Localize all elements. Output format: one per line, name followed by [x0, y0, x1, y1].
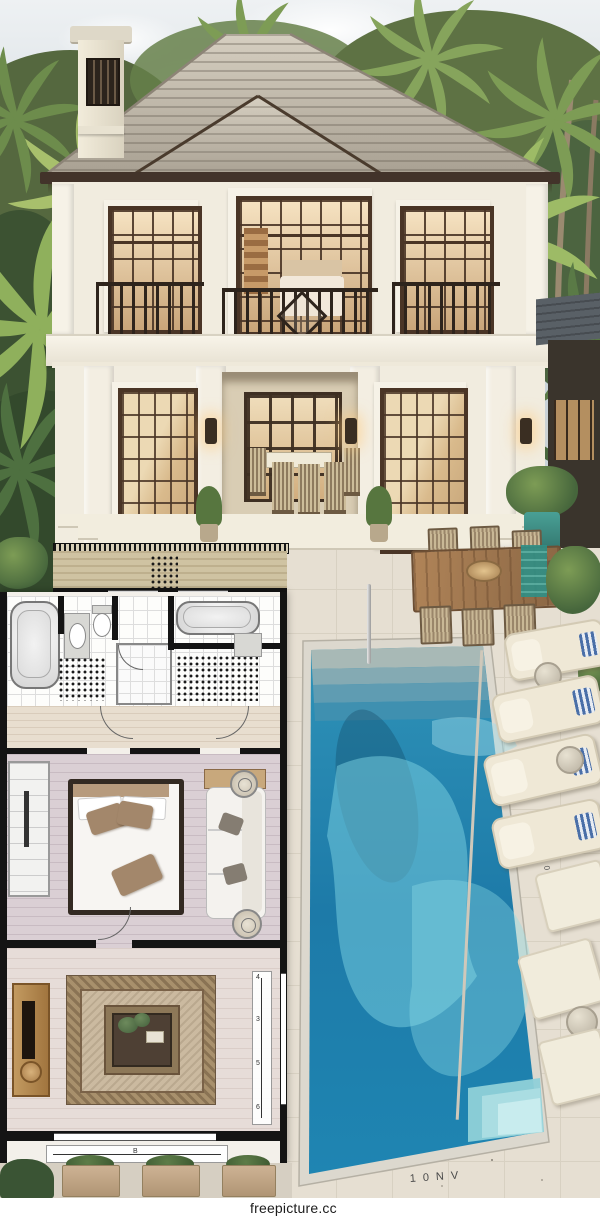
- side-wing-window: [554, 400, 594, 460]
- plan-balcony-screen: [150, 555, 178, 588]
- plan-wardrobe: [8, 761, 50, 897]
- watermark-bar: freepicture.cc: [0, 1198, 600, 1220]
- potted-plant: [196, 486, 222, 526]
- plant-pot: [370, 524, 388, 542]
- potted-plant: [366, 486, 392, 526]
- teal-ceramic-planter: [524, 512, 560, 558]
- plan-wardrobe-handle: [24, 791, 29, 847]
- plan-bathtub-2-inner: [183, 606, 251, 628]
- corner-pilaster: [52, 184, 74, 334]
- pool-depth-mark: 10NV: [409, 1169, 465, 1185]
- swimming-pool: 10NV 0110: [282, 626, 586, 1192]
- staircase-through-window: [244, 228, 268, 294]
- plan-fireplace-emblem: [20, 1061, 42, 1083]
- plan-wall-left: [0, 592, 7, 1163]
- planter: [222, 1165, 276, 1197]
- balcony-railing-right: [392, 282, 500, 341]
- plan-bathtub-inner: [17, 610, 51, 678]
- plan-mosaic-floor: [176, 655, 258, 701]
- palm-over-plan: [0, 537, 48, 589]
- outdoor-shower-pole: [367, 584, 371, 664]
- porch-chair: [298, 464, 320, 516]
- plan-wall-stub: [168, 643, 280, 649]
- plan-bed-headboard: [73, 784, 169, 797]
- plan-toilet: [93, 613, 111, 637]
- plan-window-bottom: [54, 1133, 216, 1141]
- plan-sofa-back: [242, 791, 262, 913]
- porch-chair: [324, 462, 346, 514]
- villa-aerial-photo: 10NV 0110: [0, 0, 600, 1220]
- plan-sink: [69, 623, 86, 649]
- porch-chair: [272, 462, 294, 514]
- wall-sconce: [205, 418, 217, 444]
- plan-dimension-right: 4 3 5 6: [252, 971, 272, 1125]
- chimney-vent: [86, 58, 120, 106]
- porch-chair: [250, 448, 266, 496]
- plan-fireplace-slot: [22, 1001, 35, 1059]
- plan-wall: [132, 940, 280, 948]
- plan-window-right: [281, 973, 286, 1105]
- balcony-railing-left: [96, 282, 204, 341]
- plan-table-tray: [146, 1031, 164, 1043]
- plan-wall-stub: [112, 596, 118, 640]
- plan-wall-stub: [168, 596, 174, 650]
- floor-plan: 4 3 5 6 B: [0, 543, 292, 1198]
- planter-row-photo: [0, 1163, 292, 1198]
- plan-wall: [7, 940, 96, 948]
- plant-pot: [200, 524, 218, 542]
- wall-sconce: [520, 418, 532, 444]
- side-wing-roof: [536, 293, 600, 346]
- foliage-corner: [0, 1159, 54, 1199]
- plan-table-plant: [134, 1013, 150, 1027]
- plan-vanity-2: [234, 633, 262, 657]
- plan-round-table: [232, 909, 262, 939]
- wall-sconce: [345, 418, 357, 444]
- watermark-text: freepicture.cc: [250, 1200, 337, 1216]
- plan-mosaic-floor: [58, 657, 106, 701]
- chimney-band: [78, 126, 124, 134]
- pool-depth-mark-side: 0110: [542, 865, 556, 907]
- bed-headboard-through-window: [282, 260, 342, 276]
- planter: [142, 1165, 200, 1197]
- planter: [62, 1165, 120, 1197]
- house: [0, 0, 600, 600]
- plan-round-table: [230, 770, 258, 798]
- porch-chair: [344, 448, 360, 496]
